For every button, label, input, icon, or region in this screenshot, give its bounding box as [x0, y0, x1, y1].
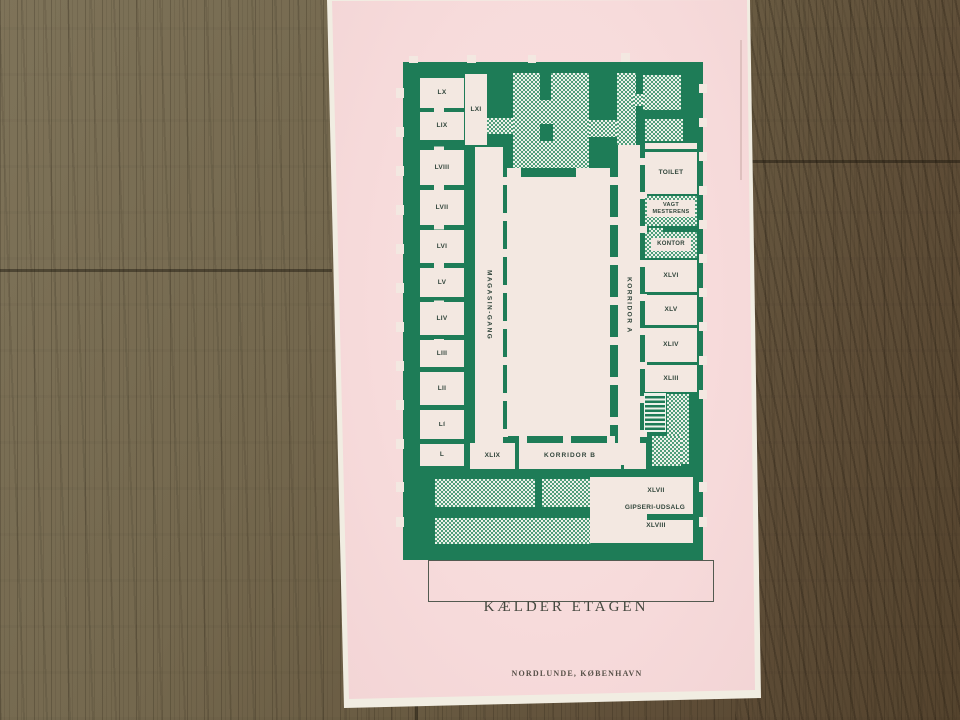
wall-stub-courtyard [521, 168, 576, 177]
room-kontor: KONTOR [651, 238, 691, 251]
room-gipseri-udsalg-label: GIPSERI-UDSALG [617, 500, 693, 516]
floor-plan: LX LIX LVIII LVII LVI LV LIV LIII LII LI… [403, 62, 703, 560]
chimney-tab [621, 53, 630, 62]
hatched-area-top-center [513, 73, 589, 170]
hatched-arm-right [589, 120, 619, 137]
wood-diagonal-grain [735, 0, 960, 720]
corridor-magasin-gang: MAGASIN-GANG [475, 147, 503, 464]
hatched-storage-upper-right [542, 479, 590, 507]
room-lx: LX [420, 78, 464, 108]
room-xliv: XLIV [645, 328, 697, 362]
room-xlviii-label: XLVIII [625, 521, 687, 530]
corridor-a: KORRIDOR A [618, 145, 640, 465]
book-cover: LX LIX LVIII LVII LVI LV LIV LIII LII LI… [326, 0, 764, 712]
chimney-tab [409, 56, 418, 63]
hatched-storage-lower [435, 518, 591, 544]
wall-slot [645, 143, 697, 149]
left-window-bumps-lower [396, 482, 404, 544]
room-xlix: XLIX [470, 443, 515, 469]
right-window-bumps [699, 84, 707, 414]
room-xlvii-label: XLVII [625, 486, 687, 495]
room-l: L [420, 444, 464, 466]
chimney-tab [467, 55, 476, 63]
wall-notch [540, 124, 553, 141]
plan-caption: KÆLDER ETAGEN [366, 599, 766, 616]
room-vagtmesterens: VAGT MESTERENS [647, 200, 695, 217]
hatched-arm-left [487, 118, 513, 134]
room-lxi: LXI [465, 74, 487, 145]
left-window-bumps [396, 88, 404, 460]
corridor-a-door-ticks [610, 177, 618, 437]
hatched-block-top-right-lower [645, 119, 683, 141]
wall-notch [540, 73, 551, 100]
staircase [645, 394, 665, 431]
hatched-block-top-right-upper [643, 75, 681, 110]
courtyard [507, 168, 610, 436]
foundation-outline [428, 560, 714, 602]
room-toilet: TOILET [645, 152, 697, 194]
hatched-strip-top-right [617, 73, 636, 145]
corridor-b-door-ticks [519, 436, 621, 444]
hatched-connector [633, 94, 643, 106]
hatched-storage-upper-left [435, 479, 535, 507]
corridor-b-extension [624, 443, 646, 469]
room-xliii: XLIII [645, 365, 697, 392]
left-wing-door-gaps [434, 108, 444, 444]
room-xlvi: XLVI [645, 260, 697, 292]
printer-imprint: NORDLUNDE, KØBENHAVN [386, 669, 768, 678]
paper-crease [740, 40, 742, 180]
plank-seam-left [0, 269, 332, 272]
hatched-block-corridor-b [652, 436, 681, 466]
right-window-bumps-lower [699, 482, 707, 544]
chimney-tab [528, 55, 536, 63]
corridor-b: KORRIDOR B [519, 443, 621, 469]
photo-scene: LX LIX LVIII LVII LVI LV LIV LIII LII LI… [0, 0, 960, 720]
room-xlv: XLV [645, 295, 697, 325]
plank-seam-right [744, 160, 960, 163]
